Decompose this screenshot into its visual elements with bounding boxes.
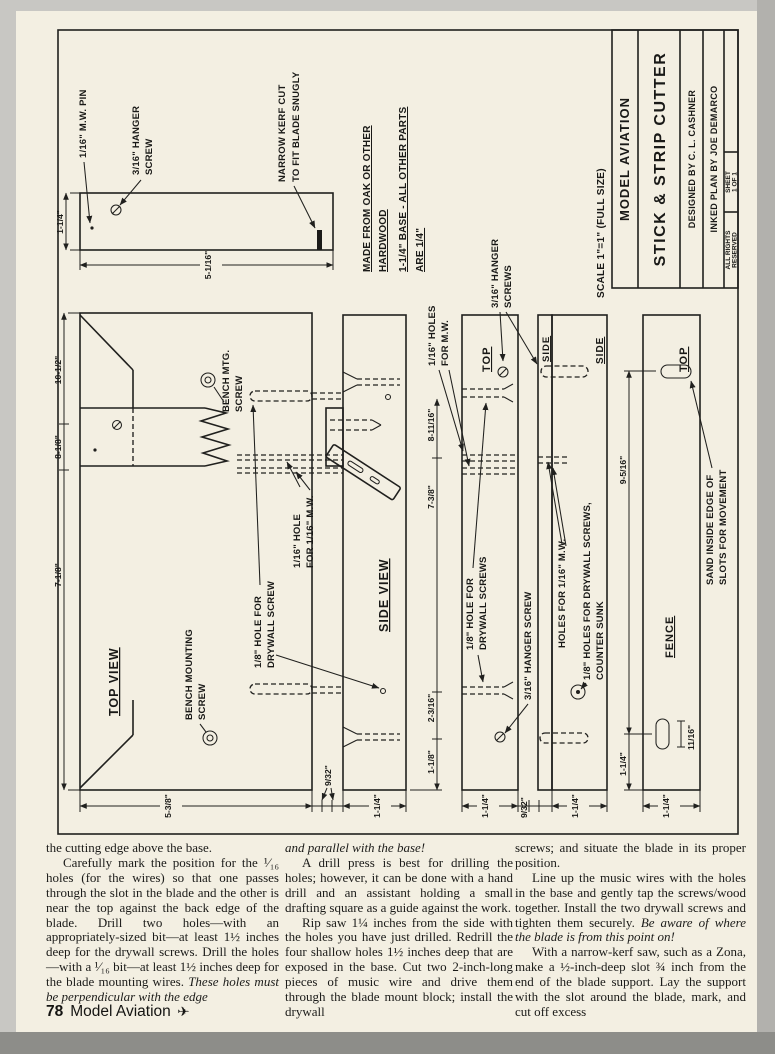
bench-mtg-screw-label-line2: SCREW: [234, 376, 245, 412]
sidestrip-width-dim: 1-1/4": [570, 794, 580, 818]
blade-support-drawing: 1/16" M.W. PIN 3/16" HANGER SCREW NARROW…: [55, 71, 333, 279]
support-width-dim: 1-1/4": [55, 210, 65, 234]
bench-mtg-screw-label-line1: BENCH MTG.: [221, 350, 232, 412]
mw-hole-label-line2: FOR 1/16" M.W.: [305, 495, 316, 568]
magazine-name: Model Aviation: [70, 1003, 171, 1021]
page-number: 78: [46, 1003, 63, 1021]
titleblock-plan-title: STICK & STRIP CUTTER: [652, 52, 669, 267]
mw-holes-label-line1: 1/16" HOLES: [427, 305, 438, 366]
topstrip-width-dim: 1-1/4": [480, 794, 490, 818]
note-line2: HARDWOOD: [378, 209, 389, 272]
fence-slots-dim: 9-5/16": [618, 456, 628, 484]
article-paragraph: screws; and situate the blade in its pro…: [515, 841, 746, 871]
scale-note: SCALE 1"=1" (FULL SIZE): [596, 168, 607, 298]
strips-drywall-label-line2: COUNTER SUNK: [595, 601, 606, 680]
fence-slot-end-dim: 1-1/4": [618, 752, 628, 776]
bench-mounting-screw-label-line2: SCREW: [197, 684, 208, 720]
article-column-3: screws; and situate the blade in its pro…: [515, 841, 746, 1020]
side-strip1-label: SIDE: [541, 336, 552, 362]
drywall-hole-lower-dashed: [250, 684, 312, 694]
kerf-label-line1: NARROW KERF CUT: [277, 85, 288, 182]
lower-slot-dashed: [540, 733, 588, 743]
side-view-label: SIDE VIEW: [377, 558, 391, 632]
article-column-1: the cutting edge above the base. Careful…: [46, 841, 279, 1005]
note-line3: 1-1/4" BASE - ALL OTHER PARTS: [398, 106, 409, 272]
fence-top-label: TOP: [678, 347, 690, 372]
article-paragraph: and parallel with the base!: [285, 841, 513, 856]
drywall-hole-upper-dashed: [250, 391, 312, 401]
sideview-width-dim: 1-1/4": [372, 794, 382, 818]
gap-dim-9-32: 9/32": [323, 765, 333, 786]
base-top-view-drawing: TOP VIEW BENCH MTG. SCREW BENCH MOUNTING…: [53, 313, 379, 818]
sand-note-line1: SAND INSIDE EDGE OF: [705, 475, 716, 585]
fence-slot-length-dim: 11/16": [686, 725, 696, 750]
strip-drywall-label-line2: DRYWALL SCREWS: [478, 556, 489, 650]
hanger-screws-label-line1: 3/16" HANGER: [490, 239, 501, 308]
sand-note-line2: SLOTS FOR MOVEMENT: [718, 470, 729, 586]
fence-lower-slot: [656, 719, 669, 749]
side-view-drawing: SIDE VIEW 8-11/16" 7-3/8" 2-3/16" 1-1/8"…: [326, 315, 442, 818]
blade: [326, 444, 401, 500]
title-block: MODEL AVIATION STICK & STRIP CUTTER DESI…: [612, 30, 739, 288]
drywall-hole-label-line2: DRYWALL SCREW: [266, 581, 277, 668]
titleblock-magazine: MODEL AVIATION: [617, 97, 632, 221]
hanger-screws-label-line2: SCREWS: [503, 265, 514, 308]
bench-screw-symbol-lower: [203, 731, 217, 745]
blade-mount-block: [326, 408, 343, 466]
sideview-dim-2-3-16: 2-3/16": [426, 694, 436, 722]
titleblock-sheet-line2: 1 OF 1: [732, 172, 739, 192]
hanger-screws-callout: 3/16" HANGER SCREWS: [490, 239, 537, 364]
break-line-zigzag: [201, 408, 229, 466]
strips-drywall-label-line1: 1/8" HOLES FOR DRYWALL SCREWS,: [582, 502, 593, 680]
kerf-cut-mark: [317, 230, 322, 250]
hanger-screw-label-line2: SCREW: [144, 139, 155, 175]
sideview-dim-7-3-8: 7-3/8": [426, 485, 436, 509]
pin-label: 1/16" M.W. PIN: [78, 89, 89, 158]
topstrip-gap-dim: 9/32": [519, 797, 529, 818]
strip-drywall-label-line1: 1/8" HOLE FOR: [465, 578, 476, 650]
sideview-dim-1-1-8: 1-1/8": [426, 750, 436, 774]
base-dim-7-1-8: 7-1/8": [53, 563, 63, 587]
upper-slot-dashed: [541, 366, 588, 377]
article-paragraph: Line up the music wires with the holes i…: [515, 871, 746, 946]
article-paragraph: Rip saw 1¼ inches from the side with the…: [285, 916, 513, 1020]
base-dim-8-1-8: 8-1/8": [53, 435, 63, 459]
article-column-2: and parallel with the base! A drill pres…: [285, 841, 513, 1020]
page-footer: 78 Model Aviation ✈: [46, 1003, 189, 1021]
material-notes: MADE FROM OAK OR OTHER HARDWOOD 1-1/4" B…: [362, 106, 426, 272]
article-paragraph: the cutting edge above the base.: [46, 841, 279, 856]
support-length-dim: 5-1/16": [203, 251, 213, 279]
fence-drawing: TOP FENCE 11/16" SAND INSIDE EDGE OF SLO…: [618, 315, 729, 818]
drywall-hole-label-line1: 1/8" HOLE FOR: [253, 596, 264, 668]
article-paragraph: With a narrow-kerf saw, such as a Zona, …: [515, 945, 746, 1020]
note-line4: ARE 1/4": [415, 228, 426, 272]
sideview-dim-8-11-16: 8-11/16": [426, 409, 436, 442]
base-length-dim: 10-1/2": [53, 356, 63, 384]
fence-label: FENCE: [664, 616, 676, 658]
top-face-label: TOP: [481, 347, 493, 372]
bench-screw-symbol-upper: [201, 373, 215, 387]
side-strips-drawing: SIDE SIDE HOLES FOR 1/16" M.W. 1/8" HOLE…: [538, 315, 607, 818]
base-width-dim: 5-3/8": [163, 794, 173, 818]
fence-width-dim: 1-1/4": [661, 794, 671, 818]
titleblock-designed-by: DESIGNED BY C. L. CASHNER: [687, 90, 697, 229]
article-paragraph: A drill press is best for drilling the h…: [285, 856, 513, 916]
top-view-label: TOP VIEW: [107, 647, 121, 716]
strips-mw-holes-label: HOLES FOR 1/16" M.W.: [557, 539, 568, 648]
bench-mounting-screw-label-line1: BENCH MOUNTING: [184, 629, 195, 720]
article-paragraph: Carefully mark the position for the ¹⁄₁₆…: [46, 856, 279, 1005]
mw-holes-label-line2: FOR M.W.: [440, 320, 451, 366]
titleblock-rights-line2: RESERVED: [732, 232, 739, 268]
mw-hole-label-line1: 1/16" HOLE: [292, 514, 303, 568]
kerf-label-line2: TO FIT BLADE SNUGLY: [291, 71, 302, 182]
hanger-screw-label-line1: 3/16" HANGER: [131, 106, 142, 175]
side-strip2-label: SIDE: [595, 337, 606, 364]
note-line1: MADE FROM OAK OR OTHER: [362, 125, 373, 272]
strip-hanger-screw-label: 3/16" HANGER SCREW: [523, 592, 534, 700]
airplane-icon: ✈: [177, 1004, 190, 1020]
titleblock-inked-by: INKED PLAN BY JOE DEMARCO: [709, 86, 719, 233]
